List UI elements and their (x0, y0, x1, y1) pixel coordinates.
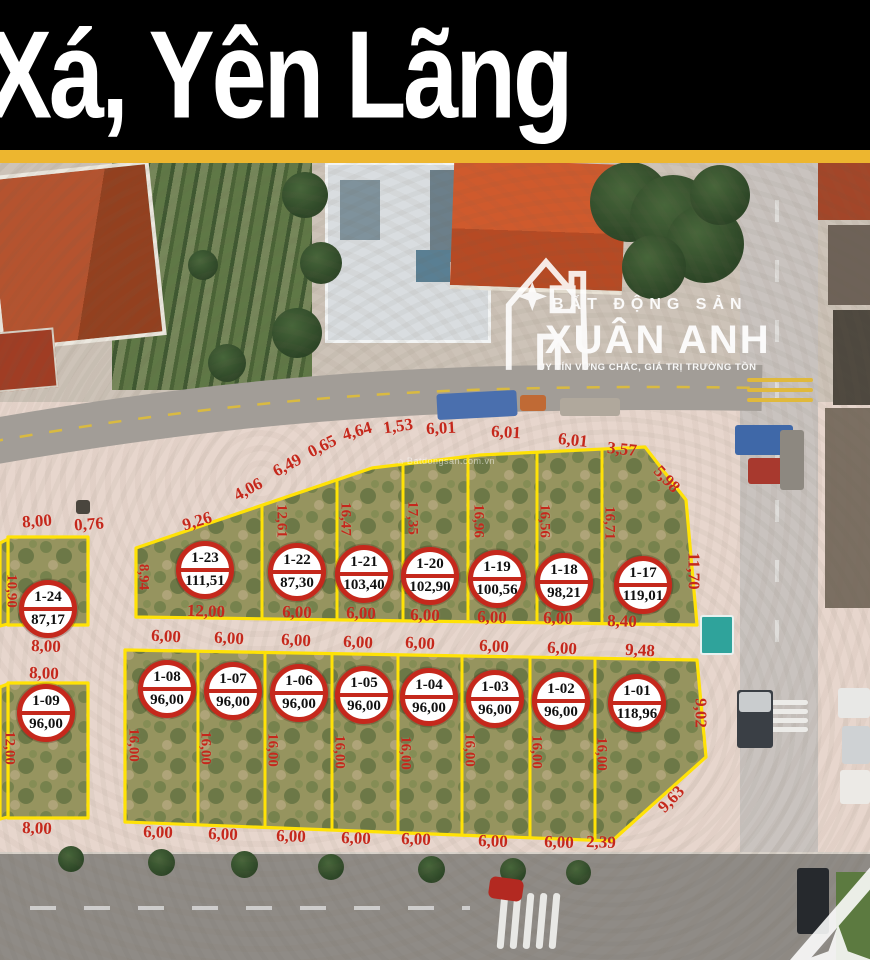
plot-marker-1-05: 1-05 96,00 (335, 666, 393, 724)
plot-area: 96,00 (412, 701, 446, 716)
plot-id: 1-24 (34, 590, 62, 605)
dimension-label: 12,61 (274, 504, 289, 538)
plot-divider-line (400, 695, 458, 699)
dimension-label: 6,00 (341, 829, 371, 847)
material-pile (560, 398, 620, 416)
gold-stripe (0, 150, 870, 163)
plot-divider-line (17, 711, 75, 715)
plot-divider-line (204, 689, 262, 693)
plot-area: 87,17 (31, 613, 65, 628)
plot-divider-line (532, 699, 590, 703)
dimension-label: 16,00 (398, 736, 413, 770)
plot-marker-1-17: 1-17 119,01 (614, 556, 672, 614)
dimension-label: 6,00 (151, 627, 182, 646)
dimension-label: 6,00 (282, 603, 312, 621)
tarp (520, 395, 546, 411)
plot-area: 119,01 (623, 589, 663, 604)
plot-area: 111,51 (185, 574, 225, 589)
site-watermark: ⌂ Batdongsan.com.vn (398, 456, 495, 466)
dimension-label: 2,39 (586, 833, 616, 851)
plot-marker-1-01: 1-01 118,96 (608, 674, 666, 732)
material-pile (780, 430, 804, 490)
plot-divider-line (335, 572, 393, 576)
crosswalk-stripe (747, 388, 813, 392)
plot-id: 1-07 (219, 672, 247, 687)
plot-id: 1-21 (350, 555, 378, 570)
land-plot-map: BẤT ĐỘNG SẢN XUÂN ANH UY TÍN VỮNG CHẮC, … (0, 0, 870, 960)
plot-marker-1-22: 1-22 87,30 (268, 543, 326, 601)
plot-marker-1-19: 1-19 100,56 (468, 550, 526, 608)
plot-area: 103,40 (343, 578, 384, 593)
dimension-label: 8,40 (607, 612, 637, 630)
dimension-label: 6,00 (281, 631, 312, 650)
tarp (436, 390, 517, 420)
dimension-label: 6,00 (543, 609, 573, 627)
plot-id: 1-20 (416, 557, 444, 572)
plot-divider-line (19, 607, 77, 611)
plot-divider-line (468, 577, 526, 581)
dimension-label: 16,56 (537, 504, 552, 538)
plot-id: 1-08 (153, 670, 181, 685)
dimension-label: 16,00 (462, 733, 477, 767)
dimension-label: 16,47 (338, 502, 353, 536)
plot-marker-1-24: 1-24 87,17 (19, 580, 77, 638)
dimension-label: 16,00 (126, 728, 141, 762)
dimension-label: 6,00 (544, 833, 574, 851)
dimension-label: 6,00 (405, 634, 436, 653)
crosswalk-stripe (747, 378, 813, 382)
car (488, 876, 525, 903)
car (838, 688, 870, 718)
dimension-label: 10,90 (4, 574, 19, 608)
dimension-label: 6,00 (208, 825, 238, 843)
brand-top-text: BẤT ĐỘNG SẢN (552, 296, 737, 314)
dimension-label: 16,00 (265, 733, 280, 767)
plot-area: 87,30 (280, 576, 314, 591)
plot-marker-1-23: 1-23 111,51 (176, 541, 234, 599)
plot-divider-line (270, 691, 328, 695)
plot-id: 1-04 (415, 678, 443, 693)
dimension-label: 12,00 (2, 731, 17, 765)
plot-area: 100,56 (476, 583, 517, 598)
dimension-label: 8,00 (22, 819, 52, 837)
plot-divider-line (614, 583, 672, 587)
dimension-label: 9,48 (625, 641, 656, 660)
plot-area: 96,00 (282, 697, 316, 712)
manhole (76, 500, 90, 514)
dimension-label: 1,53 (382, 416, 414, 437)
plot-area: 96,00 (29, 717, 63, 732)
dimension-label: 0,76 (74, 514, 105, 533)
road-lane-dashes (30, 906, 470, 910)
plot-divider-line (401, 574, 459, 578)
dimension-label: 6,00 (478, 832, 508, 850)
dimension-label: 6,00 (346, 604, 376, 622)
brand-tagline: UY TÍN VỮNG CHẮC, GIÁ TRỊ TRƯỜNG TỒN (538, 362, 753, 373)
dimension-label: 6,00 (343, 633, 374, 652)
plot-area: 96,00 (544, 705, 578, 720)
plot-divider-line (335, 693, 393, 697)
car (840, 770, 870, 804)
dimension-label: 16,96 (471, 504, 486, 538)
dimension-label: 8,00 (22, 511, 53, 530)
plot-marker-1-09: 1-09 96,00 (17, 684, 75, 742)
plot-divider-line (268, 570, 326, 574)
plot-area: 96,00 (347, 699, 381, 714)
plot-area: 96,00 (216, 695, 250, 710)
plot-marker-1-02: 1-02 96,00 (532, 672, 590, 730)
brand-name: XUÂN ANH (545, 318, 745, 363)
plot-divider-line (176, 568, 234, 572)
plot-divider-line (535, 580, 593, 584)
plot-id: 1-23 (191, 551, 219, 566)
dimension-label: 17,35 (405, 501, 420, 535)
truck-cab (739, 692, 771, 712)
dimension-label: 6,00 (143, 823, 173, 841)
plot-id: 1-06 (285, 674, 313, 689)
plot-marker-1-04: 1-04 96,00 (400, 668, 458, 726)
plot-marker-1-21: 1-21 103,40 (335, 545, 393, 603)
plot-id: 1-03 (481, 680, 509, 695)
dimension-label: 8,00 (29, 664, 59, 682)
dimension-label: 6,00 (401, 830, 431, 848)
dimension-label: 16,00 (198, 731, 213, 765)
dimension-label: 3,57 (606, 439, 637, 459)
plot-area: 96,00 (150, 693, 184, 708)
plot-id: 1-17 (629, 566, 657, 581)
dimension-label: 6,00 (214, 629, 245, 648)
dimension-label: 9,02 (693, 698, 710, 728)
page-title: Xá, Yên Lãng (0, 4, 571, 147)
plot-marker-1-06: 1-06 96,00 (270, 664, 328, 722)
car (842, 726, 870, 764)
plot-area: 118,96 (617, 707, 657, 722)
title-banner: Xá, Yên Lãng (0, 0, 870, 150)
plot-divider-line (608, 701, 666, 705)
plot-id: 1-09 (32, 694, 60, 709)
plot-marker-1-20: 1-20 102,90 (401, 547, 459, 605)
plot-divider-line (138, 687, 196, 691)
dimension-label: 16,00 (332, 735, 347, 769)
dimension-label: 12,00 (187, 602, 226, 620)
plot-id: 1-19 (483, 560, 511, 575)
plot-area: 96,00 (478, 703, 512, 718)
dimension-label: 6,00 (547, 639, 578, 658)
plot-id: 1-18 (550, 563, 578, 578)
plot-area: 98,21 (547, 586, 581, 601)
plot-id: 1-01 (623, 684, 651, 699)
plot-area: 102,90 (409, 580, 450, 595)
dimension-label: 16,00 (529, 735, 544, 769)
crosswalk-stripe (747, 398, 813, 402)
plot-marker-1-08: 1-08 96,00 (138, 660, 196, 718)
plot-divider-line (466, 697, 524, 701)
dimension-label: 6,01 (426, 419, 457, 438)
plot-marker-1-18: 1-18 98,21 (535, 553, 593, 611)
plot-marker-1-03: 1-03 96,00 (466, 670, 524, 728)
dimension-label: 6,00 (410, 606, 440, 624)
plot-id: 1-05 (350, 676, 378, 691)
dimension-label: 6,01 (557, 430, 588, 450)
plot-marker-1-07: 1-07 96,00 (204, 662, 262, 720)
plot-id: 1-02 (547, 682, 575, 697)
dimension-label: 16,71 (602, 506, 617, 540)
dimension-label: 8,00 (31, 637, 61, 655)
dimension-label: 6,00 (276, 827, 306, 845)
dimension-label: 8,94 (136, 564, 151, 590)
house-logo-icon (742, 852, 870, 960)
dimension-label: 6,01 (491, 423, 522, 442)
dimension-label: 11,70 (686, 552, 703, 589)
plot-id: 1-22 (283, 553, 311, 568)
dimension-label: 16,00 (594, 737, 609, 771)
canopy (700, 615, 734, 655)
dimension-label: 6,00 (477, 608, 507, 626)
dimension-label: 6,00 (479, 637, 510, 656)
